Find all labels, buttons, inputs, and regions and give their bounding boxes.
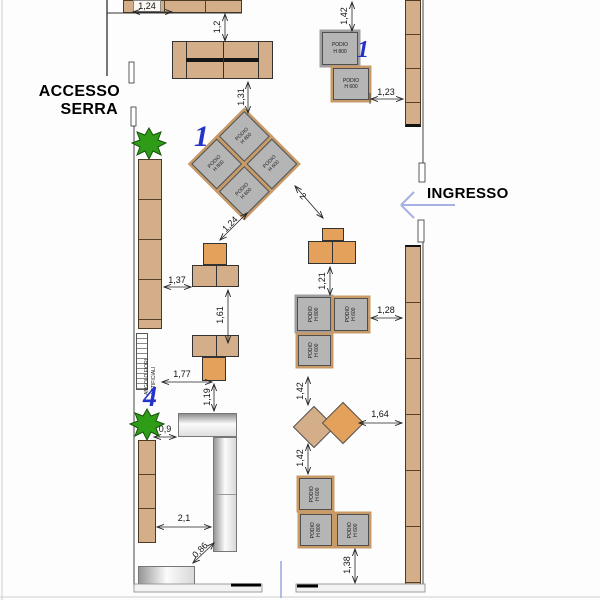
right-wall-shelf-upper — [405, 0, 421, 127]
dim-wall-to-t2: 1,77 — [170, 369, 194, 379]
podio-label: PODIOH 600 — [343, 78, 359, 91]
podio-box-bot-3: PODIOH 600 — [337, 514, 369, 546]
sofa-gondola — [172, 41, 273, 79]
podio-label: PODIOH 800 — [310, 522, 323, 538]
t-podium-divider — [216, 336, 217, 356]
dim-diamond-to-podium: 1,24 — [217, 211, 242, 236]
sofa-right-cap — [258, 42, 272, 78]
t-podium-3-base — [308, 241, 356, 264]
dim-plant-to-counter: 0,9 — [154, 424, 176, 434]
dim-diamonds-to-wall: 1,64 — [368, 409, 392, 419]
t-podium-3-top — [322, 228, 344, 241]
sofa-left-cap — [173, 42, 187, 78]
counter-bottom — [138, 566, 195, 588]
t-podium-1-base — [192, 265, 239, 287]
left-wall-shelf-upper — [138, 159, 162, 329]
counter-vertical — [213, 437, 237, 552]
podio-label: PODIOH 600 — [309, 486, 322, 502]
dim-cluster-to-diamonds: 1,42 — [295, 378, 305, 404]
podio-box-h600-top-right: PODIOH 600 — [333, 68, 369, 100]
right-wall-shelf-lower — [405, 245, 421, 585]
dim-wall-to-t1: 1,37 — [165, 275, 189, 285]
t-podium-1-top — [203, 243, 227, 265]
podio-label: PODIOH 600 — [308, 342, 321, 358]
t-podium-2-base — [192, 335, 239, 357]
zone-marker-4-corner: 4 — [143, 384, 157, 412]
ingresso-label: INGRESSO — [427, 185, 509, 202]
dim-t-right-to-cluster: 1,21 — [317, 268, 327, 294]
small-diamond-orange — [322, 402, 364, 444]
floor-plan-canvas: PODIOH 800 PODIOH 600 PODIOH 800 PODIOH … — [0, 0, 600, 600]
accesso-serra-label: ACCESSO SERRA — [30, 83, 120, 120]
left-wall-shelf-lower — [138, 440, 156, 543]
podio-label: PODIOH 800 — [308, 306, 321, 322]
podio-label: PODIOH 600 — [347, 522, 360, 538]
accesso-line1: ACCESSO — [30, 83, 120, 101]
dim-diamonds-to-cluster2: 1,42 — [295, 445, 305, 471]
dim-podio-tr-to-wall: 1,23 — [374, 87, 398, 97]
podio-label: PODIOH 800 — [332, 42, 348, 55]
dim-wall-to-counter: 2,1 — [172, 513, 196, 523]
podio-box-mid-1: PODIOH 800 — [297, 297, 331, 331]
t-podium-2-bottom — [202, 357, 226, 381]
accesso-line2: SERRA — [30, 101, 120, 119]
counter-top — [178, 413, 237, 437]
dim-t2-to-counter: 1,19 — [202, 384, 212, 410]
counter-divider — [214, 494, 236, 495]
podio-label: PODIOH 800 — [234, 126, 254, 146]
t-podium-divider — [216, 266, 217, 286]
dim-wall-to-podio-tr: 1,42 — [339, 3, 349, 29]
dim-top-shelf: 1,24 — [133, 0, 161, 12]
podio-box-bot-1: PODIOH 600 — [299, 478, 332, 510]
podio-label: PODIOH 600 — [345, 306, 358, 322]
dim-sofa-to-diamond: 1,31 — [236, 84, 246, 110]
plant-icon-top — [132, 128, 166, 159]
dim-counter-gap: 0,86 — [187, 537, 212, 562]
dim-t1-to-t2: 1,61 — [215, 302, 225, 328]
dim-diamond-to-t-right: 2 — [295, 188, 311, 204]
podio-box-h800-top-right: PODIOH 800 — [322, 32, 358, 65]
podio-box-bot-2: PODIOH 800 — [300, 514, 332, 546]
podio-box-mid-2: PODIOH 600 — [334, 298, 368, 331]
podio-label: PODIOH 800 — [207, 154, 227, 174]
dim-cluster-to-wall: 1,28 — [374, 305, 398, 315]
podio-label: PODIOH 600 — [234, 181, 254, 201]
podio-label: PODIOH 600 — [262, 154, 282, 174]
zone-marker-1-diamond: 1 — [194, 122, 209, 152]
sofa-divider — [223, 42, 224, 78]
zone-marker-1-top-right: 1 — [357, 38, 369, 62]
dim-shelf-to-sofa: 1,2 — [212, 14, 222, 40]
t-podium-divider — [332, 242, 333, 263]
dim-cluster2-to-floor: 1,38 — [342, 552, 352, 578]
podio-box-mid-3: PODIOH 600 — [298, 335, 331, 366]
